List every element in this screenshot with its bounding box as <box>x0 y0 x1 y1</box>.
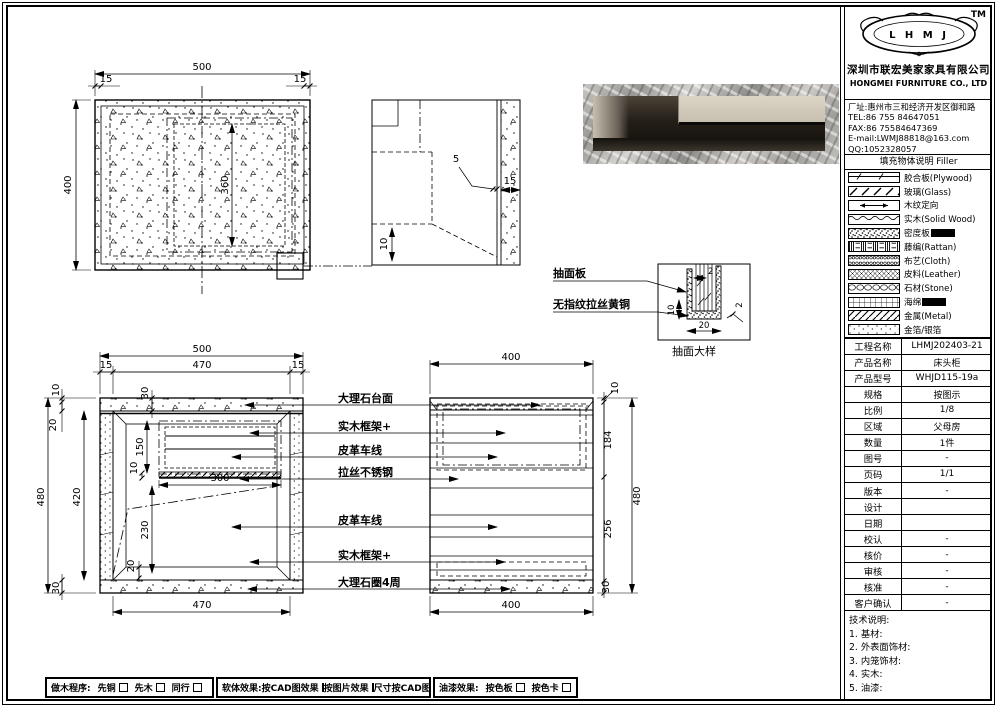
redacted-bar <box>931 229 955 237</box>
dim-front-500: 500 <box>192 344 211 355</box>
photo-drawer-front <box>678 96 825 125</box>
callout-drawer-face: 抽面板 <box>553 266 587 280</box>
dim-face-10: 10 <box>667 305 677 316</box>
dim-front-470-bottom: 470 <box>192 600 211 611</box>
photo-cavity <box>593 96 825 151</box>
project-info-table: 工程名称LHMJ202403-21 产品名称床头柜 产品型号WHJD115-19… <box>845 338 992 612</box>
legend-row-sponge: 海绵 <box>848 295 992 309</box>
legend-row-metal: 金属(Metal) <box>848 309 992 323</box>
front-elevation <box>44 352 310 616</box>
company-name-en: HONGMEI FURNITURE CO., LTD <box>845 79 992 88</box>
tech-note-item: 1. 基材: <box>849 628 988 642</box>
dim-side-400-top: 400 <box>501 352 520 363</box>
legend-title: 填充物体说明 Filler <box>845 155 992 170</box>
dim-detail-15: 15 <box>504 176 517 187</box>
legend-row-cloth: 布艺(Cloth) <box>848 254 992 268</box>
table-row: 版本- <box>845 483 992 499</box>
label-marble-ring: 大理石圈4周 <box>338 575 401 589</box>
trademark-symbol: TM <box>971 10 986 20</box>
dim-side-10: 10 <box>610 382 621 395</box>
company-logo: L H M J <box>849 9 989 57</box>
legend-row-plywood: 胶合板(Plywood) <box>848 171 992 185</box>
dim-plan-400: 400 <box>63 175 74 194</box>
company-email: E-mail:LWMJ88818@163.com <box>848 133 989 143</box>
dim-front-230: 230 <box>140 520 151 539</box>
material-legend: 胶合板(Plywood) 玻璃(Glass) 木纹定向 实木(Solid Woo… <box>845 170 992 338</box>
table-row: 比例1/8 <box>845 403 992 419</box>
checkbox <box>193 683 202 692</box>
table-row: 数量1件 <box>845 435 992 451</box>
dim-front-15-left: 15 <box>100 360 113 371</box>
woodwork-order-box: 做木程序: 先铜 先木 同行 <box>45 677 214 698</box>
dim-plan-15-left: 15 <box>100 74 113 85</box>
tech-note-item: 5. 油漆: <box>849 682 988 696</box>
table-row: 规格按图示 <box>845 387 992 403</box>
checkbox <box>156 683 165 692</box>
dim-face-2-right: 2 <box>735 302 745 307</box>
tech-notes: 技术说明: 1. 基材: 2. 外表面饰材: 3. 内笼饰材: 4. 实木: 5… <box>845 611 992 700</box>
detail-caption: 抽面大样 <box>672 344 716 358</box>
company-contact: 厂址:惠州市三和经济开发区御和路 TEL:86 755 84647051 FAX… <box>845 100 992 155</box>
checkbox <box>516 683 525 692</box>
dim-front-30-bottom: 30 <box>51 582 62 595</box>
dim-plan-500: 500 <box>192 62 211 73</box>
dim-detail-10: 10 <box>379 238 390 251</box>
dim-plan-15-right: 15 <box>294 74 307 85</box>
dim-front-150: 150 <box>135 437 146 456</box>
dim-side-400-bottom: 400 <box>501 600 520 611</box>
dim-detail-5: 5 <box>453 154 459 165</box>
dim-side-480: 480 <box>632 486 643 505</box>
company-address: 厂址:惠州市三和经济开发区御和路 <box>848 102 989 112</box>
checkbox <box>562 683 571 692</box>
dim-side-256: 256 <box>603 519 614 538</box>
dim-front-30-inner: 30 <box>140 387 151 400</box>
dim-front-20-rail: 20 <box>126 560 137 573</box>
company-qq: QQ:1052328057 <box>848 144 989 154</box>
blueprint-sheet: 500 15 15 400 360 10 5 15 <box>0 0 997 707</box>
dim-face-20: 20 <box>699 321 710 331</box>
company-tel: TEL:86 755 84647051 <box>848 112 989 122</box>
dim-side-184: 184 <box>603 430 614 449</box>
legend-row-solid-wood: 实木(Solid Wood) <box>848 212 992 226</box>
dim-front-10-strip: 10 <box>129 462 140 475</box>
legend-row-foil: 金箔/银箔 <box>848 323 992 337</box>
dim-front-15-right: 15 <box>292 360 305 371</box>
dim-side-30: 30 <box>601 581 612 594</box>
callout-brass: 无指纹拉丝黄铜 <box>552 297 630 311</box>
table-row: 设计 <box>845 499 992 515</box>
tech-notes-title: 技术说明: <box>849 614 988 628</box>
table-row: 产品型号WHJD115-19a <box>845 371 992 387</box>
label-wood-frame-2: 实木框架+ <box>338 548 391 562</box>
legend-row-leather: 皮料(Leather) <box>848 268 992 282</box>
label-leather-stitch-2: 皮革车线 <box>337 513 382 527</box>
dim-front-20-top: 20 <box>48 419 59 432</box>
label-wood-frame-1: 实木框架+ <box>338 419 391 433</box>
tech-note-item: 4. 实木: <box>849 668 988 682</box>
label-marble-top: 大理石台面 <box>338 391 393 405</box>
table-row: 审核- <box>845 563 992 579</box>
table-row: 工程名称LHMJ202403-21 <box>845 339 992 355</box>
dim-front-420: 420 <box>72 487 83 506</box>
company-header: TM L H M J 深圳市联宏美家家具有限公司 HONGMEI FURNITU… <box>845 6 992 100</box>
corner-detail-view <box>372 100 520 265</box>
table-row: 图号- <box>845 451 992 467</box>
legend-row-glass: 玻璃(Glass) <box>848 185 992 199</box>
upholstery-effect-box: 软体效果: 按CAD图效果 按图片效果 尺寸按CAD图纸 <box>216 677 431 698</box>
tech-note-item: 3. 内笼饰材: <box>849 655 988 669</box>
legend-row-rattan: 藤编(Rattan) <box>848 240 992 254</box>
title-block: TM L H M J 深圳市联宏美家家具有限公司 HONGMEI FURNITU… <box>844 6 992 700</box>
table-row: 客户确认- <box>845 595 992 611</box>
legend-row-stone: 石材(Stone) <box>848 281 992 295</box>
table-row: 核价- <box>845 547 992 563</box>
checkbox <box>119 683 128 692</box>
table-row: 日期 <box>845 515 992 531</box>
legend-row-grain-direction: 木纹定向 <box>848 199 992 213</box>
side-elevation <box>430 360 638 616</box>
legend-row-mdf: 密度板 <box>848 226 992 240</box>
table-row: 页码1/1 <box>845 467 992 483</box>
company-fax: FAX:86 75584647369 <box>848 123 989 133</box>
svg-text:L H M J: L H M J <box>889 30 949 41</box>
product-photo <box>583 84 839 164</box>
dim-plan-360: 360 <box>220 175 231 194</box>
redacted-bar <box>922 298 946 306</box>
table-row: 校认- <box>845 531 992 547</box>
company-name-cn: 深圳市联宏美家家具有限公司 <box>845 62 992 77</box>
dim-front-300: 300 <box>210 473 229 484</box>
dim-front-10-top: 10 <box>51 384 62 397</box>
footer-check-bar: 做木程序: 先铜 先木 同行 软体效果: 按CAD图效果 按图片效果 尺寸按CA… <box>0 677 845 701</box>
label-leather-stitch-1: 皮革车线 <box>337 443 382 457</box>
label-stainless: 拉丝不锈钢 <box>338 465 393 479</box>
paint-effect-box: 油漆效果: 按色板 按色卡 <box>433 677 578 698</box>
dim-front-480: 480 <box>36 487 47 506</box>
table-row: 产品名称床头柜 <box>845 355 992 371</box>
table-row: 核准- <box>845 579 992 595</box>
photo-shelf-floor <box>593 138 825 151</box>
tech-note-item: 2. 外表面饰材: <box>849 641 988 655</box>
dim-face-2-top: 2 <box>708 267 713 277</box>
table-row: 区域父母房 <box>845 419 992 435</box>
dim-front-470-top: 470 <box>192 360 211 371</box>
